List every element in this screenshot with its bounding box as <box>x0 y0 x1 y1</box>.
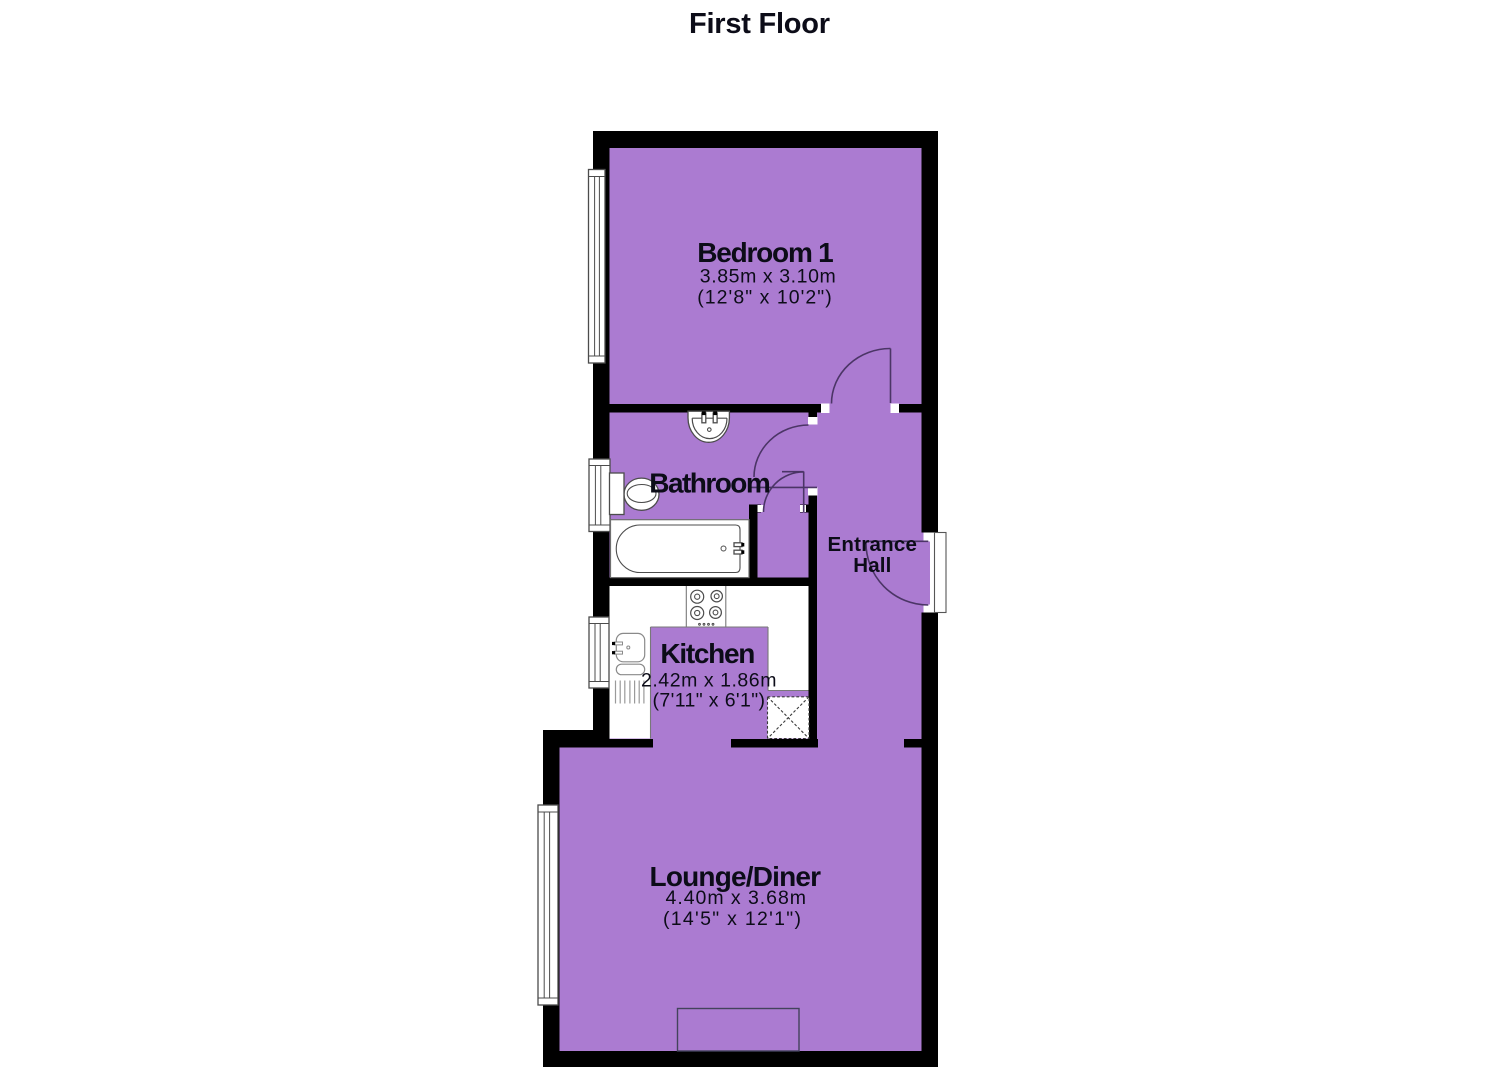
svg-text:First Floor: First Floor <box>689 8 830 40</box>
svg-text:Bathroom: Bathroom <box>649 468 771 499</box>
svg-text:Kitchen: Kitchen <box>660 638 755 669</box>
svg-text:Hall: Hall <box>853 554 891 577</box>
svg-text:3.85m x 3.10m: 3.85m x 3.10m <box>700 266 836 288</box>
svg-text:(7'11" x 6'1"): (7'11" x 6'1") <box>653 690 766 712</box>
svg-text:(12'8" x 10'2"): (12'8" x 10'2") <box>697 287 832 309</box>
svg-text:2.42m x 1.86m: 2.42m x 1.86m <box>641 670 777 692</box>
svg-text:Entrance: Entrance <box>827 533 917 556</box>
svg-text:(14'5" x 12'1"): (14'5" x 12'1") <box>663 908 801 930</box>
svg-text:Bedroom 1: Bedroom 1 <box>697 237 834 268</box>
svg-text:4.40m x 3.68m: 4.40m x 3.68m <box>666 887 807 909</box>
